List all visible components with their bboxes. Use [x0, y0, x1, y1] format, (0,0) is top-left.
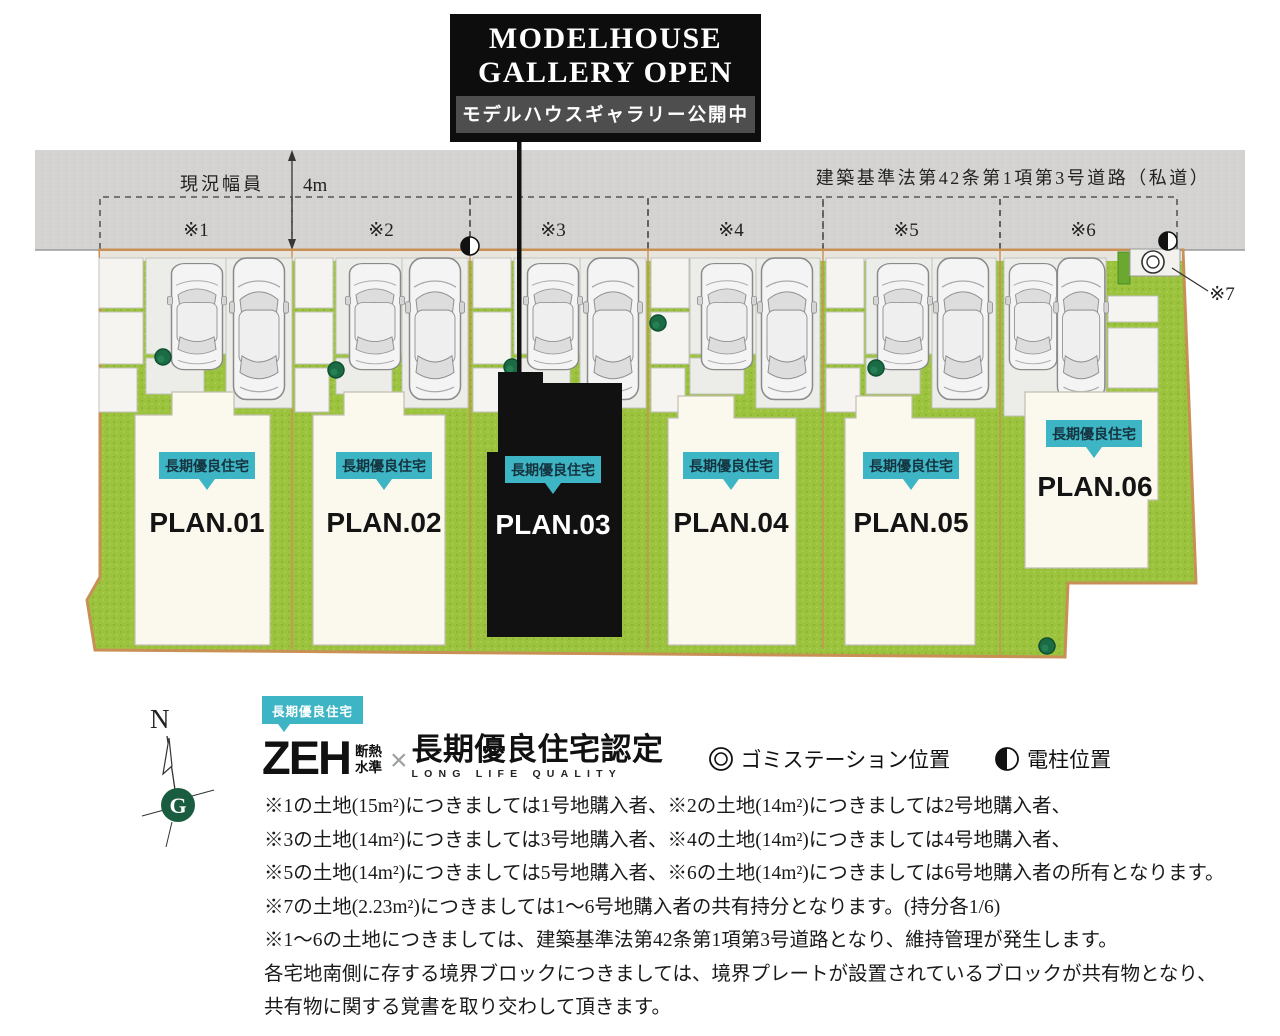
north-compass: N G — [112, 692, 242, 857]
banner-title-line1: MODELHOUSE — [456, 22, 755, 56]
lot-5: 長期優良住宅 PLAN.05 — [826, 258, 996, 645]
cross-symbol: × — [390, 746, 408, 776]
compass-logo-letter: G — [169, 793, 186, 818]
lot-4: 長期優良住宅 PLAN.04 — [650, 258, 820, 645]
svg-text:長期優良住宅: 長期優良住宅 — [342, 458, 426, 474]
marker-7: ※7 — [1209, 284, 1234, 305]
marker-6: ※6 — [1070, 220, 1095, 241]
plan-label-5: PLAN.05 — [853, 507, 968, 538]
banner-title: MODELHOUSE GALLERY OPEN — [456, 19, 755, 90]
note-line: ※3の土地(14m²)につきましては3号地購入者、※4の土地(14m²)につきま… — [264, 824, 1184, 858]
cert-block: 長期優良住宅認定 LONG LIFE QUALITY — [412, 734, 664, 780]
modelhouse-banner: MODELHOUSE GALLERY OPEN モデルハウスギャラリー公開中 — [450, 14, 761, 142]
compass-north-label: N — [150, 704, 170, 734]
road-name-label: 建築基準法第42条第1項第3号道路（私道） — [816, 168, 1211, 188]
plan-label-6: PLAN.06 — [1037, 471, 1152, 502]
marker-1: ※1 — [183, 220, 208, 241]
banner-pointer-line — [517, 118, 522, 378]
garbage-label: ゴミステーション位置 — [741, 744, 951, 774]
road-width-value: 4m — [303, 175, 328, 196]
zeh-sub-label: 断熱 水準 — [355, 744, 382, 776]
marker-5: ※5 — [893, 220, 918, 241]
note-line: ※5の土地(14m²)につきましては5号地購入者、※6の土地(14m²)につきま… — [264, 857, 1184, 891]
plan-label-1: PLAN.01 — [149, 507, 264, 538]
banner-subtitle: モデルハウスギャラリー公開中 — [456, 96, 755, 133]
note-line: 共有物に関する覚書を取り交わして頂きます。 — [264, 991, 1184, 1025]
svg-text:長期優良住宅: 長期優良住宅 — [689, 458, 773, 474]
cert-subtitle: LONG LIFE QUALITY — [412, 768, 664, 780]
road-width-label: 現況幅員 — [180, 174, 264, 194]
legend-garbage-item: ゴミステーション位置 — [708, 744, 951, 774]
zeh-sub-bottom: 水準 — [355, 760, 382, 776]
svg-text:長期優良住宅: 長期優良住宅 — [869, 458, 953, 474]
zeh-logo: ZEH — [262, 738, 350, 778]
lot-2: 長期優良住宅 PLAN.02 — [295, 258, 468, 645]
legend-row: ZEH 断熱 水準 × 長期優良住宅認定 LONG LIFE QUALITY ゴ… — [262, 734, 1111, 778]
legend-pole-item: 電柱位置 — [994, 744, 1111, 774]
notes-block: ※1の土地(15m²)につきましては1号地購入者、※2の土地(14m²)につきま… — [264, 790, 1184, 1025]
zeh-sub-top: 断熱 — [355, 744, 382, 760]
note-line: ※7の土地(2.23m²)につきましては1～6号地購入者の共有持分となります。(… — [264, 891, 1184, 925]
legend-quality-badge: 長期優良住宅 — [262, 696, 363, 724]
marker-2: ※2 — [368, 220, 393, 241]
site: 長期優良住宅 PLAN.01 — [87, 232, 1235, 657]
note-line: ※1～6の土地につきましては、建築基準法第42条第1項第3号道路となり、維持管理… — [264, 924, 1184, 958]
note-line: ※1の土地(15m²)につきましては1号地購入者、※2の土地(14m²)につきま… — [264, 790, 1184, 824]
road-surface — [35, 150, 1245, 250]
plan-label-2: PLAN.02 — [326, 507, 441, 538]
house-3-model — [487, 372, 622, 637]
plan-label-3: PLAN.03 — [495, 509, 610, 540]
svg-text:長期優良住宅: 長期優良住宅 — [1052, 426, 1136, 442]
banner-title-line2: GALLERY OPEN — [456, 56, 755, 90]
road: 現況幅員 4m 建築基準法第42条第1項第3号道路（私道） ※1 ※2 — [35, 150, 1245, 250]
marker-3: ※3 — [540, 220, 565, 241]
garbage-station-icon — [708, 746, 734, 772]
svg-text:長期優良住宅: 長期優良住宅 — [511, 462, 595, 478]
svg-text:長期優良住宅: 長期優良住宅 — [165, 458, 249, 474]
note-line: 各宅地南側に存する境界ブロックにつきましては、境界プレートが設置されているブロッ… — [264, 958, 1184, 992]
plan-label-4: PLAN.04 — [673, 507, 789, 538]
pole-label: 電柱位置 — [1027, 744, 1111, 774]
cert-title: 長期優良住宅認定 — [412, 734, 664, 765]
marker-4: ※4 — [718, 220, 744, 241]
lot-3-model-house: 長期優良住宅 PLAN.03 — [473, 258, 646, 637]
garbage-station — [1130, 249, 1180, 276]
utility-pole-legend-icon — [994, 746, 1020, 772]
site-plan-page: 現況幅員 4m 建築基準法第42条第1項第3号道路（私道） ※1 ※2 — [0, 0, 1280, 1036]
legend: 長期優良住宅 ZEH 断熱 水準 × 長期優良住宅認定 LONG LIFE QU… — [262, 696, 1111, 778]
hedge — [1118, 252, 1130, 284]
